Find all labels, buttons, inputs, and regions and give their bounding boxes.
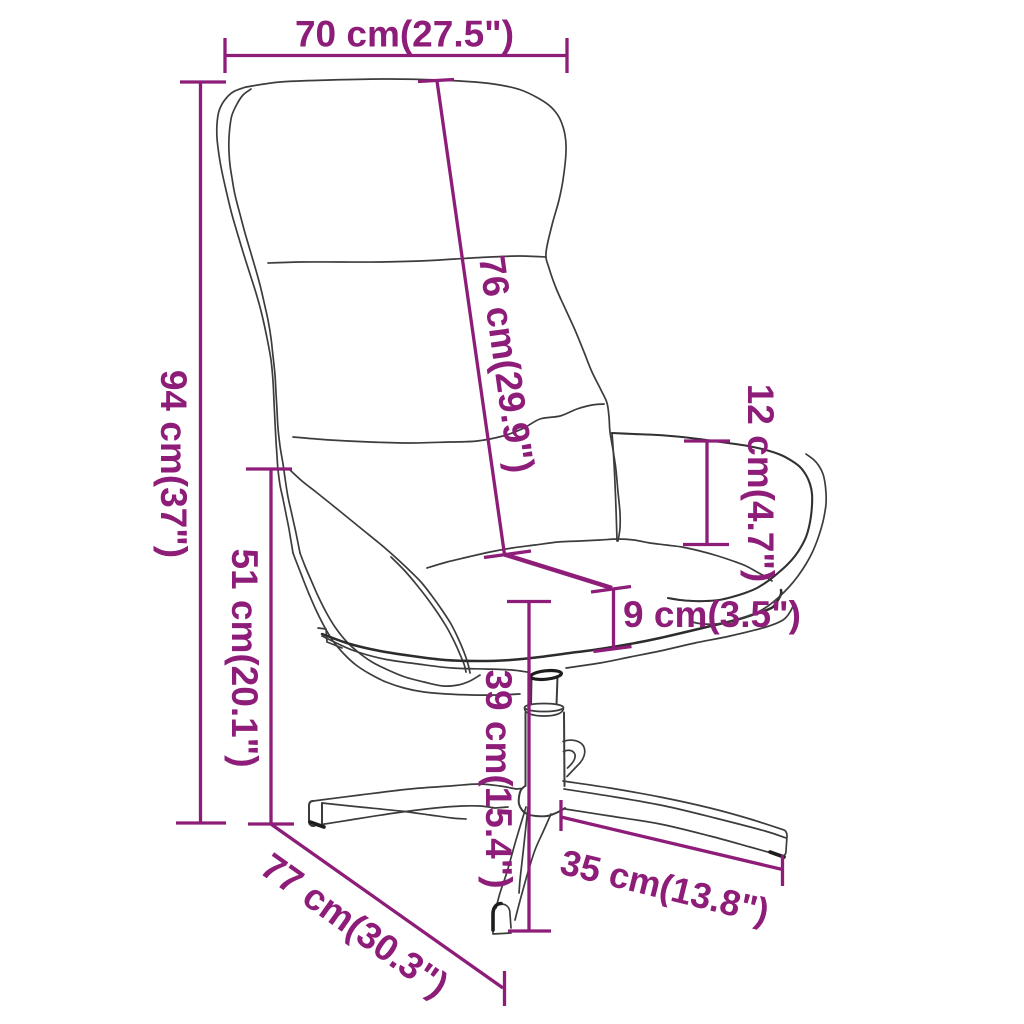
svg-text:76 cm(29.9"): 76 cm(29.9") [471,253,542,476]
svg-text:70 cm(27.5"): 70 cm(27.5") [295,14,514,55]
svg-text:12 cm(4.7"): 12 cm(4.7") [740,384,781,583]
svg-text:35 cm(13.8"): 35 cm(13.8") [556,841,773,932]
svg-text:9 cm(3.5"): 9 cm(3.5") [623,594,801,635]
svg-text:77 cm(30.3"): 77 cm(30.3") [254,845,456,1005]
svg-text:39 cm(15.4"): 39 cm(15.4") [478,669,519,888]
svg-text:51 cm(20.1"): 51 cm(20.1") [224,548,265,767]
svg-text:94 cm(37"): 94 cm(37") [153,370,194,558]
